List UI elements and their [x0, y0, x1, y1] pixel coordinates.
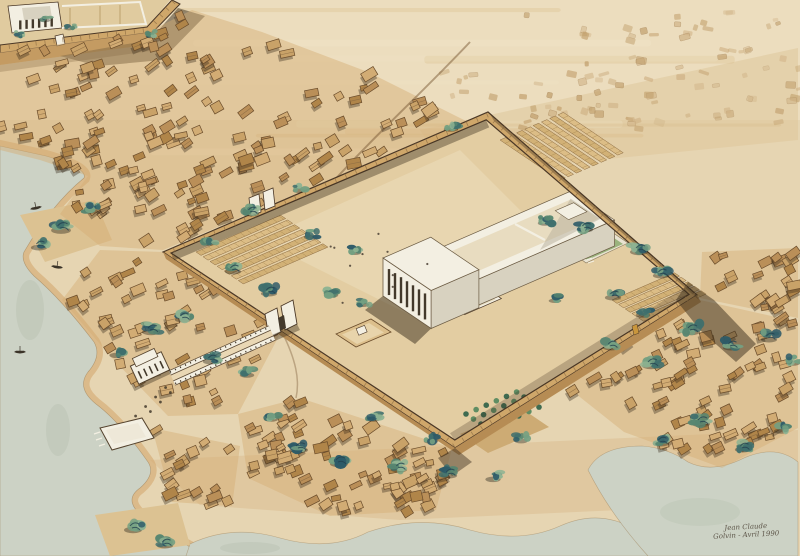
tree-canopy: [361, 299, 368, 304]
figure: [377, 233, 379, 235]
tree-canopy: [450, 121, 455, 129]
sphinx-statue: [164, 386, 167, 389]
tree-canopy: [150, 32, 154, 35]
sphinx-statue: [134, 415, 137, 418]
ruin-trace: [724, 107, 731, 114]
house: [183, 395, 192, 404]
figure: [330, 245, 332, 247]
orchard-tree: [483, 402, 489, 408]
colonnade-column: [175, 383, 176, 384]
tree-canopy: [690, 413, 698, 419]
ruin-trace: [644, 92, 654, 99]
colonnade-column: [256, 346, 257, 347]
tree-canopy: [293, 187, 298, 192]
colonnade-column: [185, 364, 186, 365]
tree-canopy: [293, 185, 298, 188]
ruin-trace: [519, 94, 527, 100]
ruin-trace: [649, 33, 659, 37]
water-shade: [16, 280, 44, 340]
orchard-tree: [463, 411, 469, 417]
figure: [386, 251, 388, 253]
tree-canopy: [18, 32, 24, 35]
ruin-trace: [615, 82, 624, 88]
sphinx-statue: [149, 410, 152, 413]
ruin-trace: [787, 97, 797, 103]
ruin-trace: [674, 14, 681, 20]
figure: [361, 253, 363, 255]
nw-gate-tower: [263, 188, 275, 210]
tree-canopy: [212, 242, 220, 246]
ruin-trace: [640, 27, 648, 35]
tree-canopy: [115, 353, 120, 357]
colonnade-column: [225, 360, 226, 361]
figure: [426, 263, 428, 265]
tree-canopy: [86, 202, 94, 209]
house: [148, 41, 159, 52]
sphinx-statue: [144, 405, 147, 408]
colonnade-column: [251, 349, 252, 350]
colonnade-column: [210, 367, 211, 368]
figure: [392, 274, 394, 276]
ruin-trace: [786, 81, 796, 88]
figure: [392, 286, 394, 288]
tree-canopy: [291, 446, 305, 451]
sphinx-statue: [159, 401, 162, 404]
tree-canopy: [688, 420, 701, 426]
tree-canopy: [640, 361, 652, 367]
tree-canopy: [353, 247, 359, 252]
tree-canopy: [429, 434, 434, 439]
sphinx-statue: [154, 396, 157, 399]
tree-canopy: [65, 25, 69, 29]
colonnade-column: [200, 371, 201, 372]
tree-canopy: [96, 204, 101, 210]
colonnade-column: [236, 355, 237, 356]
tree-canopy: [782, 425, 789, 432]
ruin-trace: [713, 113, 720, 119]
ruin-trace: [577, 95, 582, 101]
tree-canopy: [366, 302, 373, 308]
ruin-trace: [717, 54, 727, 60]
ruin-trace: [469, 72, 479, 77]
tree-canopy: [682, 328, 690, 337]
house: [249, 461, 260, 471]
tree-canopy: [761, 328, 767, 335]
house: [75, 189, 83, 195]
ruin-trace: [634, 125, 644, 132]
colonnade-column: [200, 358, 201, 359]
tree-canopy: [272, 282, 280, 290]
ruin-trace: [636, 56, 647, 65]
colonnade-column: [220, 348, 221, 349]
ruin-trace: [608, 103, 618, 109]
tree-canopy: [513, 437, 520, 442]
colonnade-column: [250, 335, 251, 336]
water-shade: [220, 542, 280, 554]
tree-canopy: [324, 292, 334, 299]
house: [313, 142, 322, 150]
colonnade-column: [241, 353, 242, 354]
tree-canopy: [40, 237, 47, 244]
tree-canopy: [643, 308, 651, 313]
colonnade-column: [240, 339, 241, 340]
ruin-trace: [595, 77, 603, 82]
tree-canopy: [430, 439, 435, 445]
colonnade-column: [175, 369, 176, 370]
tree-canopy: [524, 435, 531, 442]
colonnade-column: [255, 333, 256, 334]
ruin-trace: [595, 111, 604, 118]
ruin-trace: [674, 22, 681, 27]
house: [426, 459, 434, 466]
ruin-trace: [779, 55, 787, 62]
ruin-trace: [676, 74, 685, 80]
house: [410, 490, 423, 502]
tree-canopy: [616, 290, 624, 296]
colonnade-column: [230, 358, 231, 359]
house: [115, 358, 126, 369]
tree-canopy: [313, 228, 319, 235]
colonnade-column: [265, 328, 266, 329]
figure: [349, 265, 351, 267]
colonnade-column: [180, 380, 181, 381]
ruin-trace: [459, 89, 469, 94]
painting-canvas: [0, 0, 800, 556]
ruin-trace: [589, 107, 595, 113]
colonnade-column: [230, 344, 231, 345]
tree-canopy: [554, 293, 564, 298]
colonnade-column: [246, 351, 247, 352]
colonnade-column: [195, 374, 196, 375]
colonnade-column: [185, 378, 186, 379]
colonnade-column: [260, 330, 261, 331]
ruin-trace: [596, 103, 601, 108]
tree-canopy: [141, 326, 153, 331]
tree-canopy: [511, 432, 521, 438]
colonnade-column: [190, 376, 191, 377]
tree-canopy: [312, 235, 321, 240]
colonnade-column: [190, 362, 191, 363]
figure: [341, 302, 343, 304]
tree-canopy: [544, 215, 551, 220]
ruin-trace: [545, 104, 551, 109]
tree-canopy: [70, 26, 75, 30]
tree-canopy: [246, 366, 252, 374]
tree-canopy: [495, 470, 506, 475]
tree-canopy: [736, 445, 742, 453]
colonnade-column: [205, 369, 206, 370]
tree-canopy: [356, 303, 362, 307]
colonnade-column: [180, 367, 181, 368]
water-shade: [46, 404, 70, 456]
ruin-trace: [738, 50, 744, 54]
tree-canopy: [211, 351, 221, 357]
tree-canopy: [267, 413, 276, 421]
colonnade-column: [225, 346, 226, 347]
ruin-trace: [694, 83, 704, 91]
ruin-trace: [530, 105, 537, 112]
ruin-trace: [546, 92, 552, 98]
ruin-trace: [723, 10, 733, 15]
tree-canopy: [42, 16, 50, 20]
tree-canopy: [538, 215, 543, 220]
ruin-trace: [524, 12, 530, 18]
figure: [333, 247, 335, 249]
colonnade-column: [195, 360, 196, 361]
colonnade-column: [266, 342, 267, 343]
colonnade-column: [235, 342, 236, 343]
tree-canopy: [138, 522, 145, 528]
painting-temple-reconstruction: Jean Claude Golvin - Avril 1990: [0, 0, 800, 556]
tree-canopy: [695, 319, 704, 329]
colonnade-column: [271, 340, 272, 341]
tree-canopy: [444, 125, 450, 131]
water-shade: [660, 498, 740, 526]
colonnade-column: [215, 364, 216, 365]
ruin-trace: [585, 61, 589, 66]
sphinx-statue: [169, 391, 172, 394]
tree-canopy: [235, 263, 242, 270]
house: [261, 137, 275, 149]
colonnade-column: [245, 337, 246, 338]
tree-canopy: [545, 221, 556, 225]
paper-streak: [289, 55, 718, 61]
tree-canopy: [366, 414, 375, 420]
orchard-tree: [494, 398, 500, 404]
colonnade-column: [261, 344, 262, 345]
tree-canopy: [258, 283, 268, 292]
tree-canopy: [786, 353, 793, 360]
orchard-tree: [473, 407, 479, 413]
